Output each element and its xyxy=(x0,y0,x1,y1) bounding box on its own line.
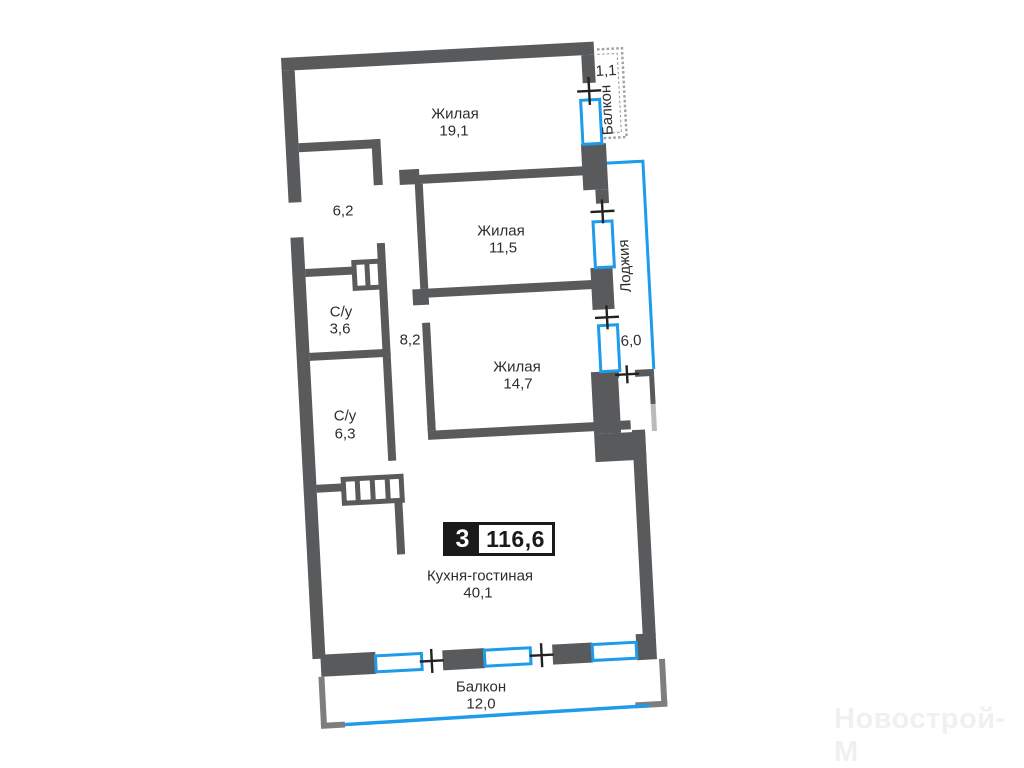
wall-bottom-seg2 xyxy=(552,643,593,665)
label-corridor-area: 8,2 xyxy=(400,333,421,348)
wall-living2-bottom-block xyxy=(412,289,429,306)
label-kitchen-area: 40,1 xyxy=(463,586,492,601)
wall-living2-left xyxy=(415,184,428,289)
wall-bath-divider xyxy=(309,349,390,361)
floor-plan-page: Жилая 19,1 6,2 Жилая 11,5 С/у 3,6 8,2 Жи… xyxy=(0,0,1024,768)
wall-bath2-bottom xyxy=(316,483,343,492)
label-loggia-area: 6,0 xyxy=(620,333,642,349)
wall-living2-bottom xyxy=(420,280,595,298)
wall-hallway-top xyxy=(298,139,372,152)
label-living2-area: 11,5 xyxy=(489,241,517,256)
label-living1-name: Жилая xyxy=(431,107,478,122)
division-mark-6 xyxy=(529,643,554,668)
window-living3 xyxy=(598,325,619,372)
label-balcony-top-area: 1,1 xyxy=(595,63,617,79)
label-bath2-name: С/у xyxy=(334,409,357,424)
label-balcony-top-name: Балкон xyxy=(598,84,616,135)
wall-top xyxy=(281,42,594,71)
label-living1-area: 19,1 xyxy=(439,124,468,139)
wall-bath1-top xyxy=(305,266,354,277)
label-bath1-name: С/у xyxy=(330,305,353,320)
wall-thin-below-loggia xyxy=(649,376,655,404)
wall-bottom-seg1 xyxy=(442,648,485,670)
label-loggia-name: Лоджия xyxy=(616,239,634,293)
label-kitchen-name: Кухня-гостиная xyxy=(427,569,533,584)
balcony-stub-left xyxy=(321,722,345,729)
wall-kitchen-right xyxy=(632,429,656,635)
badge-rooms-count: 3 xyxy=(446,525,479,553)
label-bath2-area: 6,3 xyxy=(335,427,356,442)
wall-kitchen-nook xyxy=(394,500,405,554)
label-living3-area: 14,7 xyxy=(503,377,532,392)
label-living3-name: Жилая xyxy=(493,360,540,375)
wall-left-upper xyxy=(282,70,302,202)
label-living2-name: Жилая xyxy=(477,224,524,239)
wall-living1-bottom-block xyxy=(399,169,420,185)
window-kitchen-1 xyxy=(375,653,422,671)
window-kitchen-3 xyxy=(592,642,637,660)
balcony-edge-right xyxy=(659,659,667,705)
wall-bath2-right xyxy=(383,357,396,461)
wall-hallway-right xyxy=(371,139,382,185)
badge-total-area: 116,6 xyxy=(479,525,552,553)
window-living2 xyxy=(593,221,614,268)
wall-living3-stub xyxy=(427,412,436,430)
apartment-badge: 3 116,6 xyxy=(443,522,555,556)
label-balcony-bottom-name: Балкон xyxy=(456,680,506,695)
wall-kitchen-br-corner xyxy=(636,633,657,660)
vent-shaft-1-divider xyxy=(367,262,368,288)
watermark: Новострой-М xyxy=(834,703,1024,768)
balcony-bottom-blue-line xyxy=(345,706,650,725)
wall-left-lower xyxy=(290,237,325,659)
balcony-edge-left xyxy=(318,677,327,727)
label-hallway-area: 6,2 xyxy=(333,204,354,219)
window-kitchen-2 xyxy=(484,648,531,666)
wall-living1-bottom xyxy=(405,166,587,185)
label-bath1-area: 3,6 xyxy=(330,322,351,337)
label-balcony-bottom-area: 12,0 xyxy=(466,697,495,712)
wall-light-segment xyxy=(651,404,657,431)
wall-kitchen-bl-corner xyxy=(320,652,376,677)
